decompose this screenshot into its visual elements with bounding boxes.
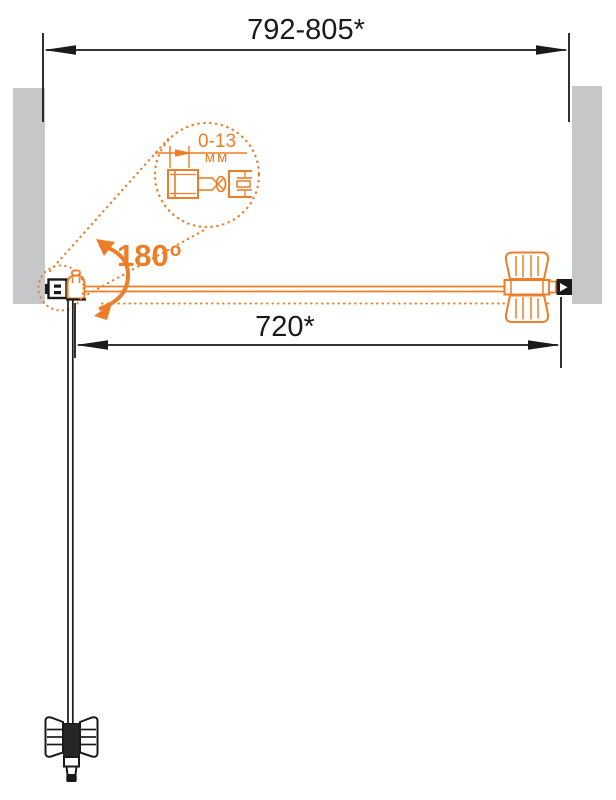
door-panel-line: [84, 287, 556, 292]
overall-width-label: 792-805*: [186, 16, 426, 45]
opening-angle-label: 180o: [117, 240, 207, 271]
right-wall: [572, 86, 602, 304]
wall-end-cap-icon: [557, 279, 573, 295]
butterfly-hinge-icon: [505, 253, 557, 323]
degree-symbol: o: [170, 240, 182, 261]
door-handle-knob-icon: [45, 717, 97, 757]
door-open-position-line: [68, 300, 73, 758]
dim-arrow-left-icon: [76, 340, 108, 349]
diagram-canvas: 792-805* 720* 0-13 мм 180o: [0, 0, 616, 800]
door-bottom-pivot-icon: [64, 757, 79, 782]
dim-arrow-left-icon: [44, 45, 76, 54]
technical-drawing: [0, 0, 616, 800]
dim-arrow-right-icon: [536, 45, 568, 54]
dim-arrow-right-icon: [528, 340, 560, 349]
door-width-label: 720*: [185, 313, 385, 342]
adjustment-unit-label: мм: [187, 150, 247, 165]
opening-angle-value: 180: [117, 238, 169, 273]
overall-width-dimension: [43, 33, 569, 122]
left-wall: [13, 88, 45, 304]
